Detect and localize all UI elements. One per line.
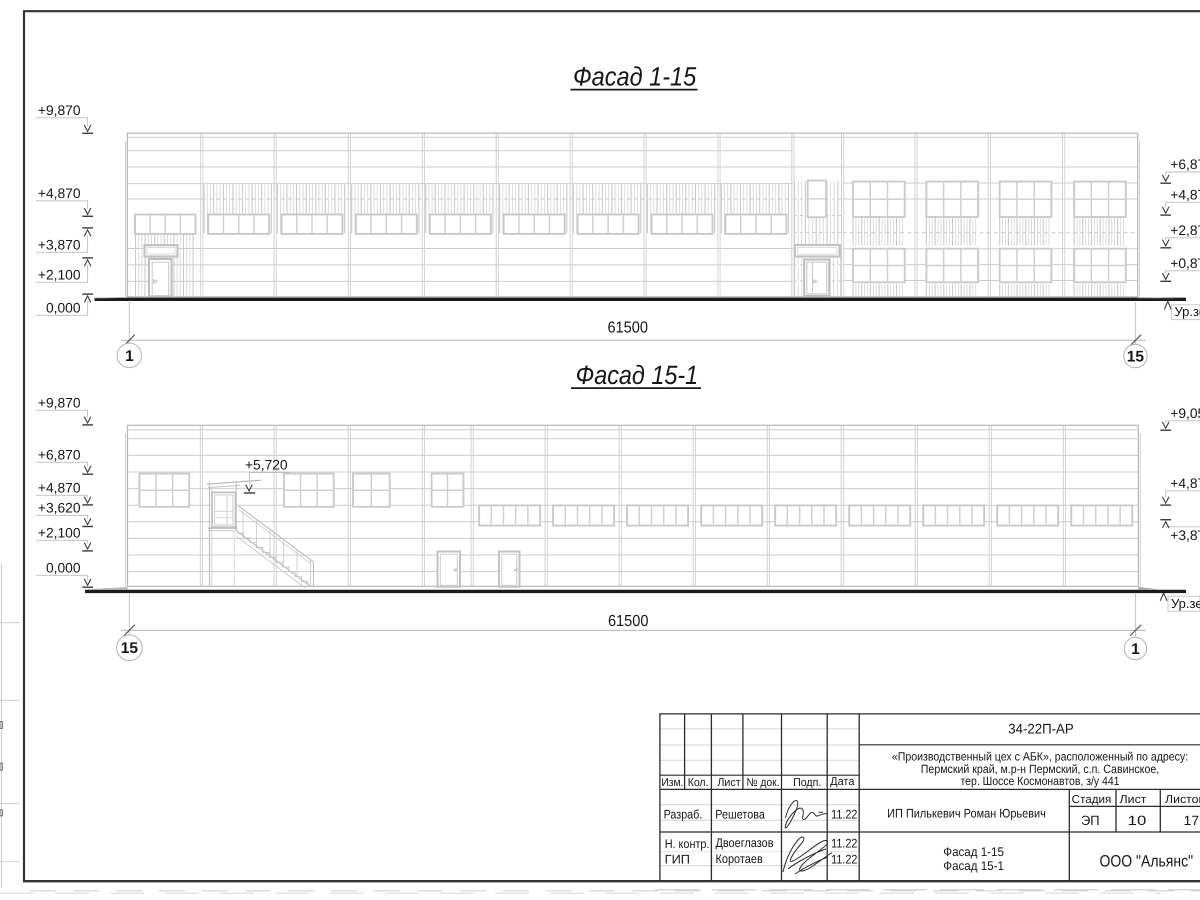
svg-text:+9,870: +9,870 [38,396,81,411]
svg-text:Разраб.: Разраб. [664,808,703,822]
svg-text:+6,87: +6,87 [1170,157,1200,172]
svg-text:Н. контр.: Н. контр. [665,837,710,851]
svg-text:11.22: 11.22 [831,837,857,851]
svg-text:+3,87: +3,87 [1170,528,1200,543]
svg-text:Двоеглазов: Двоеглазов [716,836,774,850]
svg-text:0,000: 0,000 [46,561,81,576]
svg-text:10: 10 [1128,813,1147,828]
svg-text:тер. Шоссе Космонавтов, з/у 44: тер. Шоссе Космонавтов, з/у 441 [961,774,1120,788]
svg-text:15: 15 [1127,348,1145,365]
svg-text:+4,87: +4,87 [1170,476,1200,491]
svg-text:+4,870: +4,870 [38,481,81,496]
svg-text:11.22: 11.22 [831,808,857,822]
svg-text:Фасад 1-15: Фасад 1-15 [573,61,697,91]
svg-text:ГИП: ГИП [665,852,690,866]
svg-text:+4,87: +4,87 [1170,188,1200,203]
svg-text:0,000: 0,000 [46,301,81,316]
svg-text:+2,100: +2,100 [38,526,81,541]
svg-text:+3,870: +3,870 [38,238,81,253]
svg-text:Ур.зе: Ур.зе [1175,304,1200,319]
svg-text:61500: 61500 [607,319,648,336]
svg-text:+2,100: +2,100 [38,268,81,283]
svg-text:Подп.: Подп. [793,777,821,789]
svg-text:Лист: Лист [1120,794,1148,806]
svg-text:Решетова: Решетова [715,808,765,822]
svg-text:34-22П-АР: 34-22П-АР [1008,720,1073,736]
svg-text:Фасад 15-1: Фасад 15-1 [576,360,699,390]
svg-text:1: 1 [1131,641,1140,658]
svg-text:+9,05: +9,05 [1170,406,1200,421]
svg-text:Лист: Лист [717,777,741,789]
svg-text:ООО "Альянс": ООО "Альянс" [1100,852,1194,870]
svg-text:ИП Пилькевич Роман Юрьевич: ИП Пилькевич Роман Юрьевич [887,806,1046,820]
svg-text:№ док.: № док. [746,777,779,789]
svg-text:+3,620: +3,620 [38,501,81,516]
svg-text:Листов: Листов [1165,794,1200,806]
svg-text:Стадия: Стадия [1072,794,1112,806]
svg-text:+0,87: +0,87 [1170,256,1200,271]
svg-text:ЭП: ЭП [1081,813,1100,828]
svg-text:Коротаев: Коротаев [716,852,764,866]
svg-text:1: 1 [125,348,134,365]
svg-text:+9,870: +9,870 [38,103,81,118]
svg-text:15: 15 [121,640,139,657]
svg-text:61500: 61500 [608,613,649,630]
svg-text:+5,720: +5,720 [245,458,288,473]
svg-text:Фасад 15-1: Фасад 15-1 [943,859,1004,873]
svg-text:Изм.: Изм. [661,777,683,789]
svg-text:Ур.зе: Ур.зе [1171,596,1200,611]
svg-text:+2,87: +2,87 [1170,223,1200,238]
svg-text:+4,870: +4,870 [38,186,81,201]
svg-text:17: 17 [1184,813,1200,828]
svg-text:11.22: 11.22 [831,853,857,867]
svg-text:+6,870: +6,870 [38,448,81,463]
svg-text:Фасад 1-15: Фасад 1-15 [943,845,1004,859]
svg-text:Дата: Дата [830,776,855,788]
svg-text:Кол.: Кол. [688,777,709,789]
